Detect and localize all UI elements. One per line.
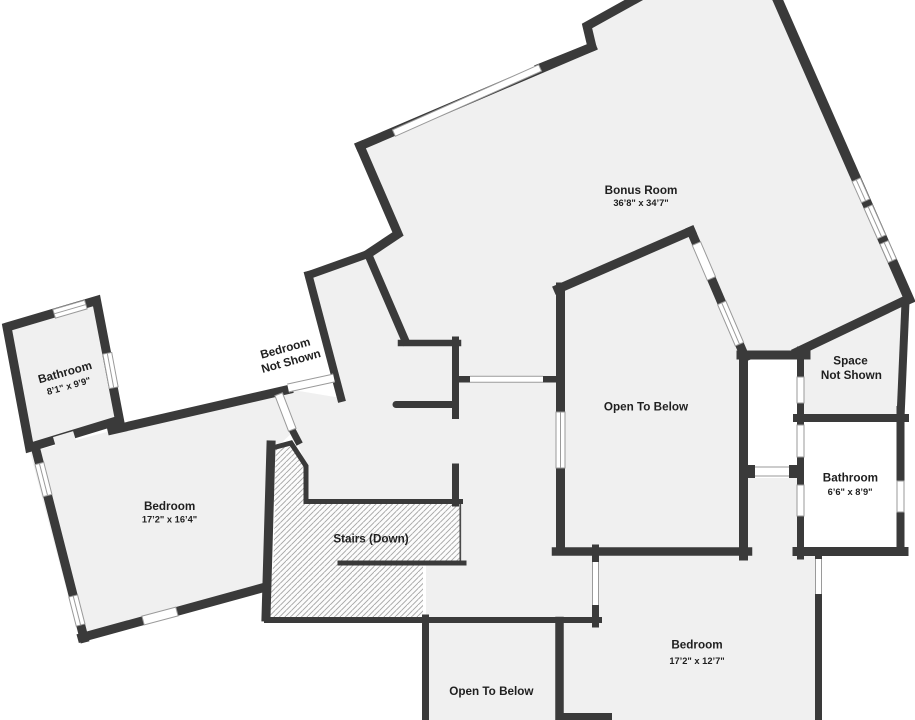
svg-text:Open To Below: Open To Below bbox=[449, 685, 534, 698]
svg-text:Bedroom: Bedroom bbox=[144, 500, 195, 513]
svg-text:Bonus Room: Bonus Room bbox=[605, 184, 678, 197]
svg-text:Stairs (Down): Stairs (Down) bbox=[333, 532, 408, 545]
svg-text:Not Shown: Not Shown bbox=[821, 369, 882, 382]
svg-text:Space: Space bbox=[833, 355, 868, 368]
svg-text:Bathroom: Bathroom bbox=[823, 472, 878, 485]
svg-text:Open To Below: Open To Below bbox=[604, 400, 689, 413]
svg-text:36’8" x 34’7": 36’8" x 34’7" bbox=[613, 198, 668, 208]
svg-text:Bedroom: Bedroom bbox=[671, 639, 722, 652]
svg-text:17’2" x 16’4": 17’2" x 16’4" bbox=[142, 514, 197, 524]
svg-text:17’2" x 12’7": 17’2" x 12’7" bbox=[669, 656, 724, 666]
svg-text:6’6" x 8’9": 6’6" x 8’9" bbox=[828, 487, 873, 497]
